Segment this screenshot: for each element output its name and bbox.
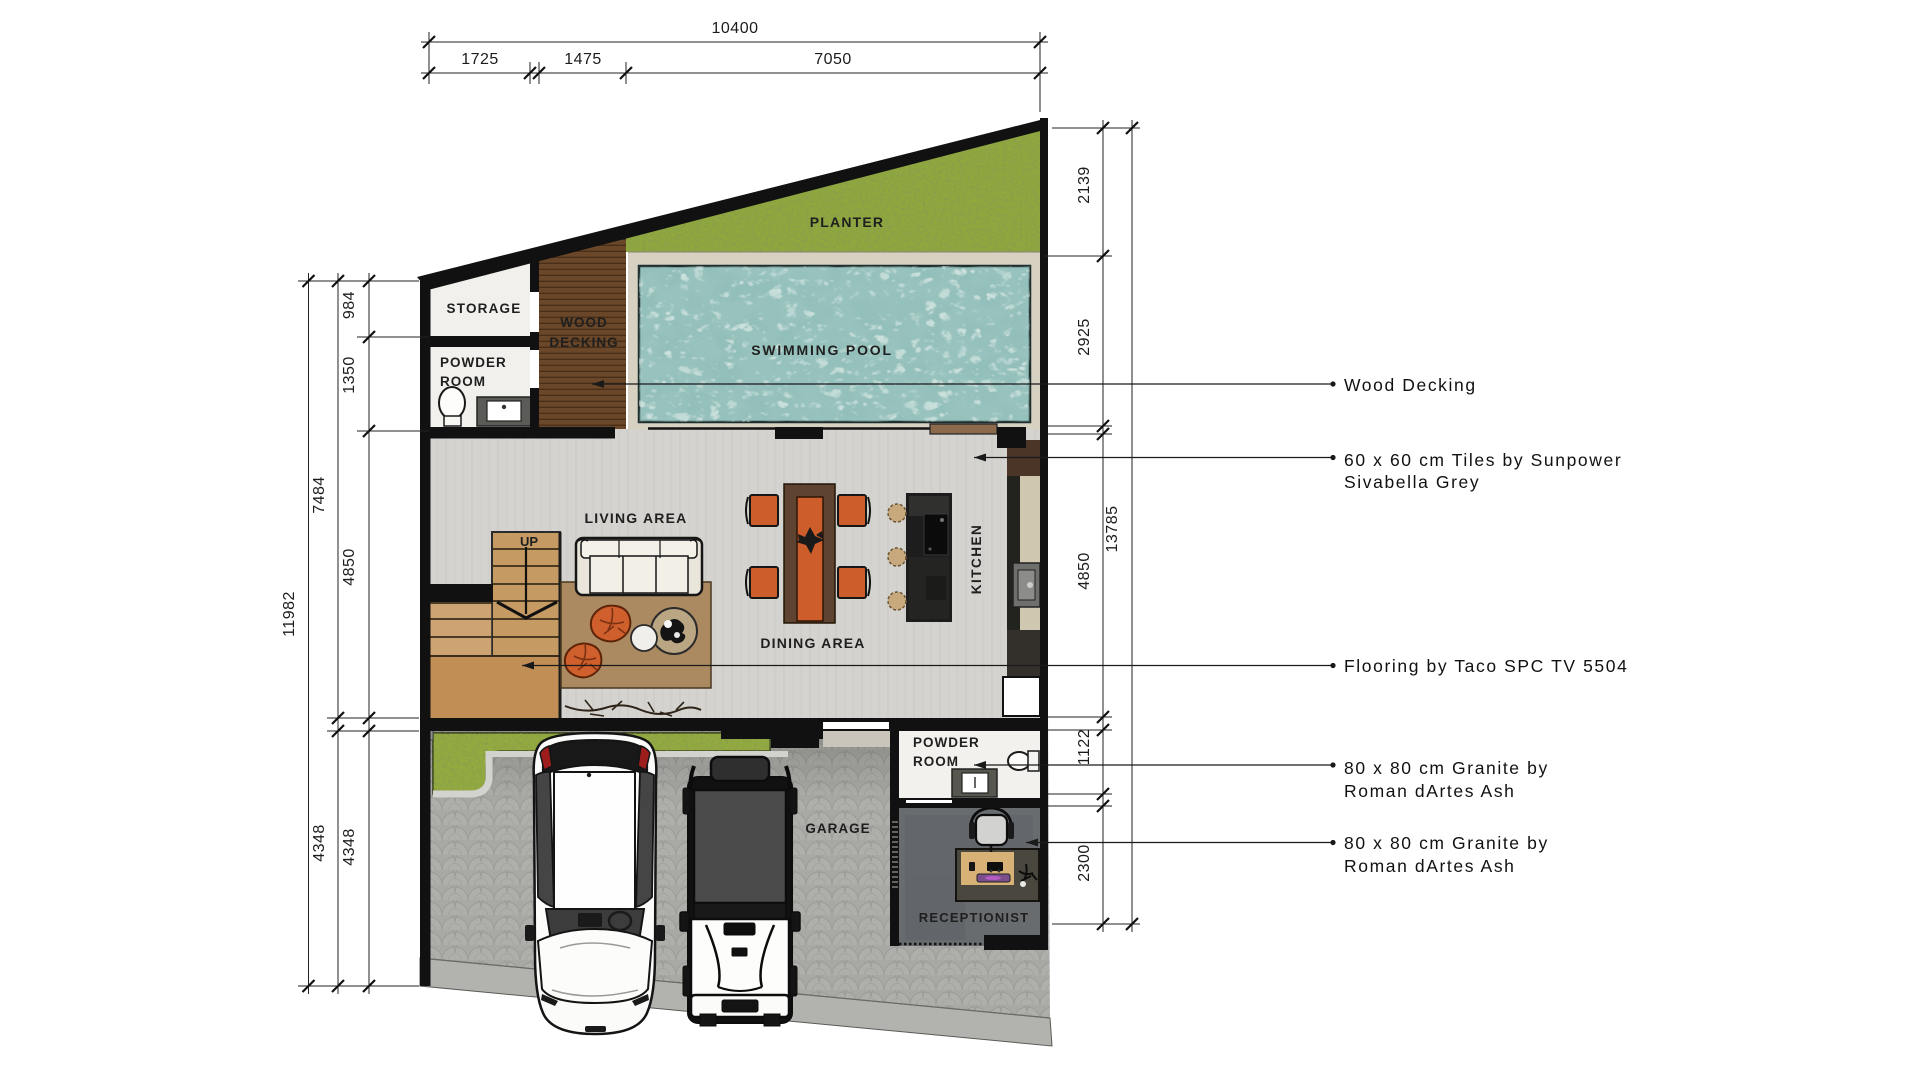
svg-text:80 x 80 cm Granite by: 80 x 80 cm Granite by <box>1344 833 1549 853</box>
svg-text:KITCHEN: KITCHEN <box>969 524 984 595</box>
svg-text:4850: 4850 <box>341 548 358 586</box>
svg-text:Wood Decking: Wood Decking <box>1344 375 1477 395</box>
svg-text:2139: 2139 <box>1076 166 1093 204</box>
svg-text:GARAGE: GARAGE <box>805 821 870 836</box>
svg-text:Sivabella Grey: Sivabella Grey <box>1344 472 1480 492</box>
svg-text:1350: 1350 <box>341 356 358 394</box>
svg-text:SWIMMING POOL: SWIMMING POOL <box>751 342 893 358</box>
svg-text:Flooring by Taco SPC TV 5504: Flooring by Taco SPC TV 5504 <box>1344 656 1628 676</box>
svg-text:7050: 7050 <box>814 51 852 68</box>
svg-text:STORAGE: STORAGE <box>447 301 522 316</box>
svg-text:2925: 2925 <box>1076 318 1093 356</box>
svg-text:10400: 10400 <box>712 20 759 37</box>
svg-text:4850: 4850 <box>1076 552 1093 590</box>
svg-text:RECEPTIONIST: RECEPTIONIST <box>919 910 1029 925</box>
svg-text:DECKING: DECKING <box>549 335 618 350</box>
svg-text:80 x 80 cm Granite by: 80 x 80 cm Granite by <box>1344 758 1549 778</box>
svg-text:4348: 4348 <box>311 824 328 862</box>
svg-text:Roman dArtes Ash: Roman dArtes Ash <box>1344 856 1516 876</box>
svg-text:2300: 2300 <box>1076 844 1093 882</box>
svg-text:UP: UP <box>520 534 538 549</box>
svg-text:DINING AREA: DINING AREA <box>760 635 865 651</box>
svg-text:7484: 7484 <box>311 476 328 514</box>
svg-text:ROOM: ROOM <box>440 374 486 389</box>
svg-text:60 x 60 cm Tiles by Sunpower: 60 x 60 cm Tiles by Sunpower <box>1344 450 1622 470</box>
svg-text:POWDER: POWDER <box>440 355 507 370</box>
svg-text:984: 984 <box>341 291 358 319</box>
svg-text:1475: 1475 <box>564 51 602 68</box>
svg-text:4348: 4348 <box>341 828 358 866</box>
svg-text:ROOM: ROOM <box>913 754 959 769</box>
svg-text:PLANTER: PLANTER <box>810 214 885 230</box>
svg-text:LIVING AREA: LIVING AREA <box>585 510 688 526</box>
svg-text:11982: 11982 <box>281 591 298 637</box>
svg-text:13785: 13785 <box>1104 506 1121 553</box>
svg-text:Roman dArtes Ash: Roman dArtes Ash <box>1344 781 1516 801</box>
svg-text:1122: 1122 <box>1076 729 1093 765</box>
svg-text:1725: 1725 <box>461 51 499 68</box>
svg-text:POWDER: POWDER <box>913 735 980 750</box>
svg-text:WOOD: WOOD <box>560 315 608 330</box>
